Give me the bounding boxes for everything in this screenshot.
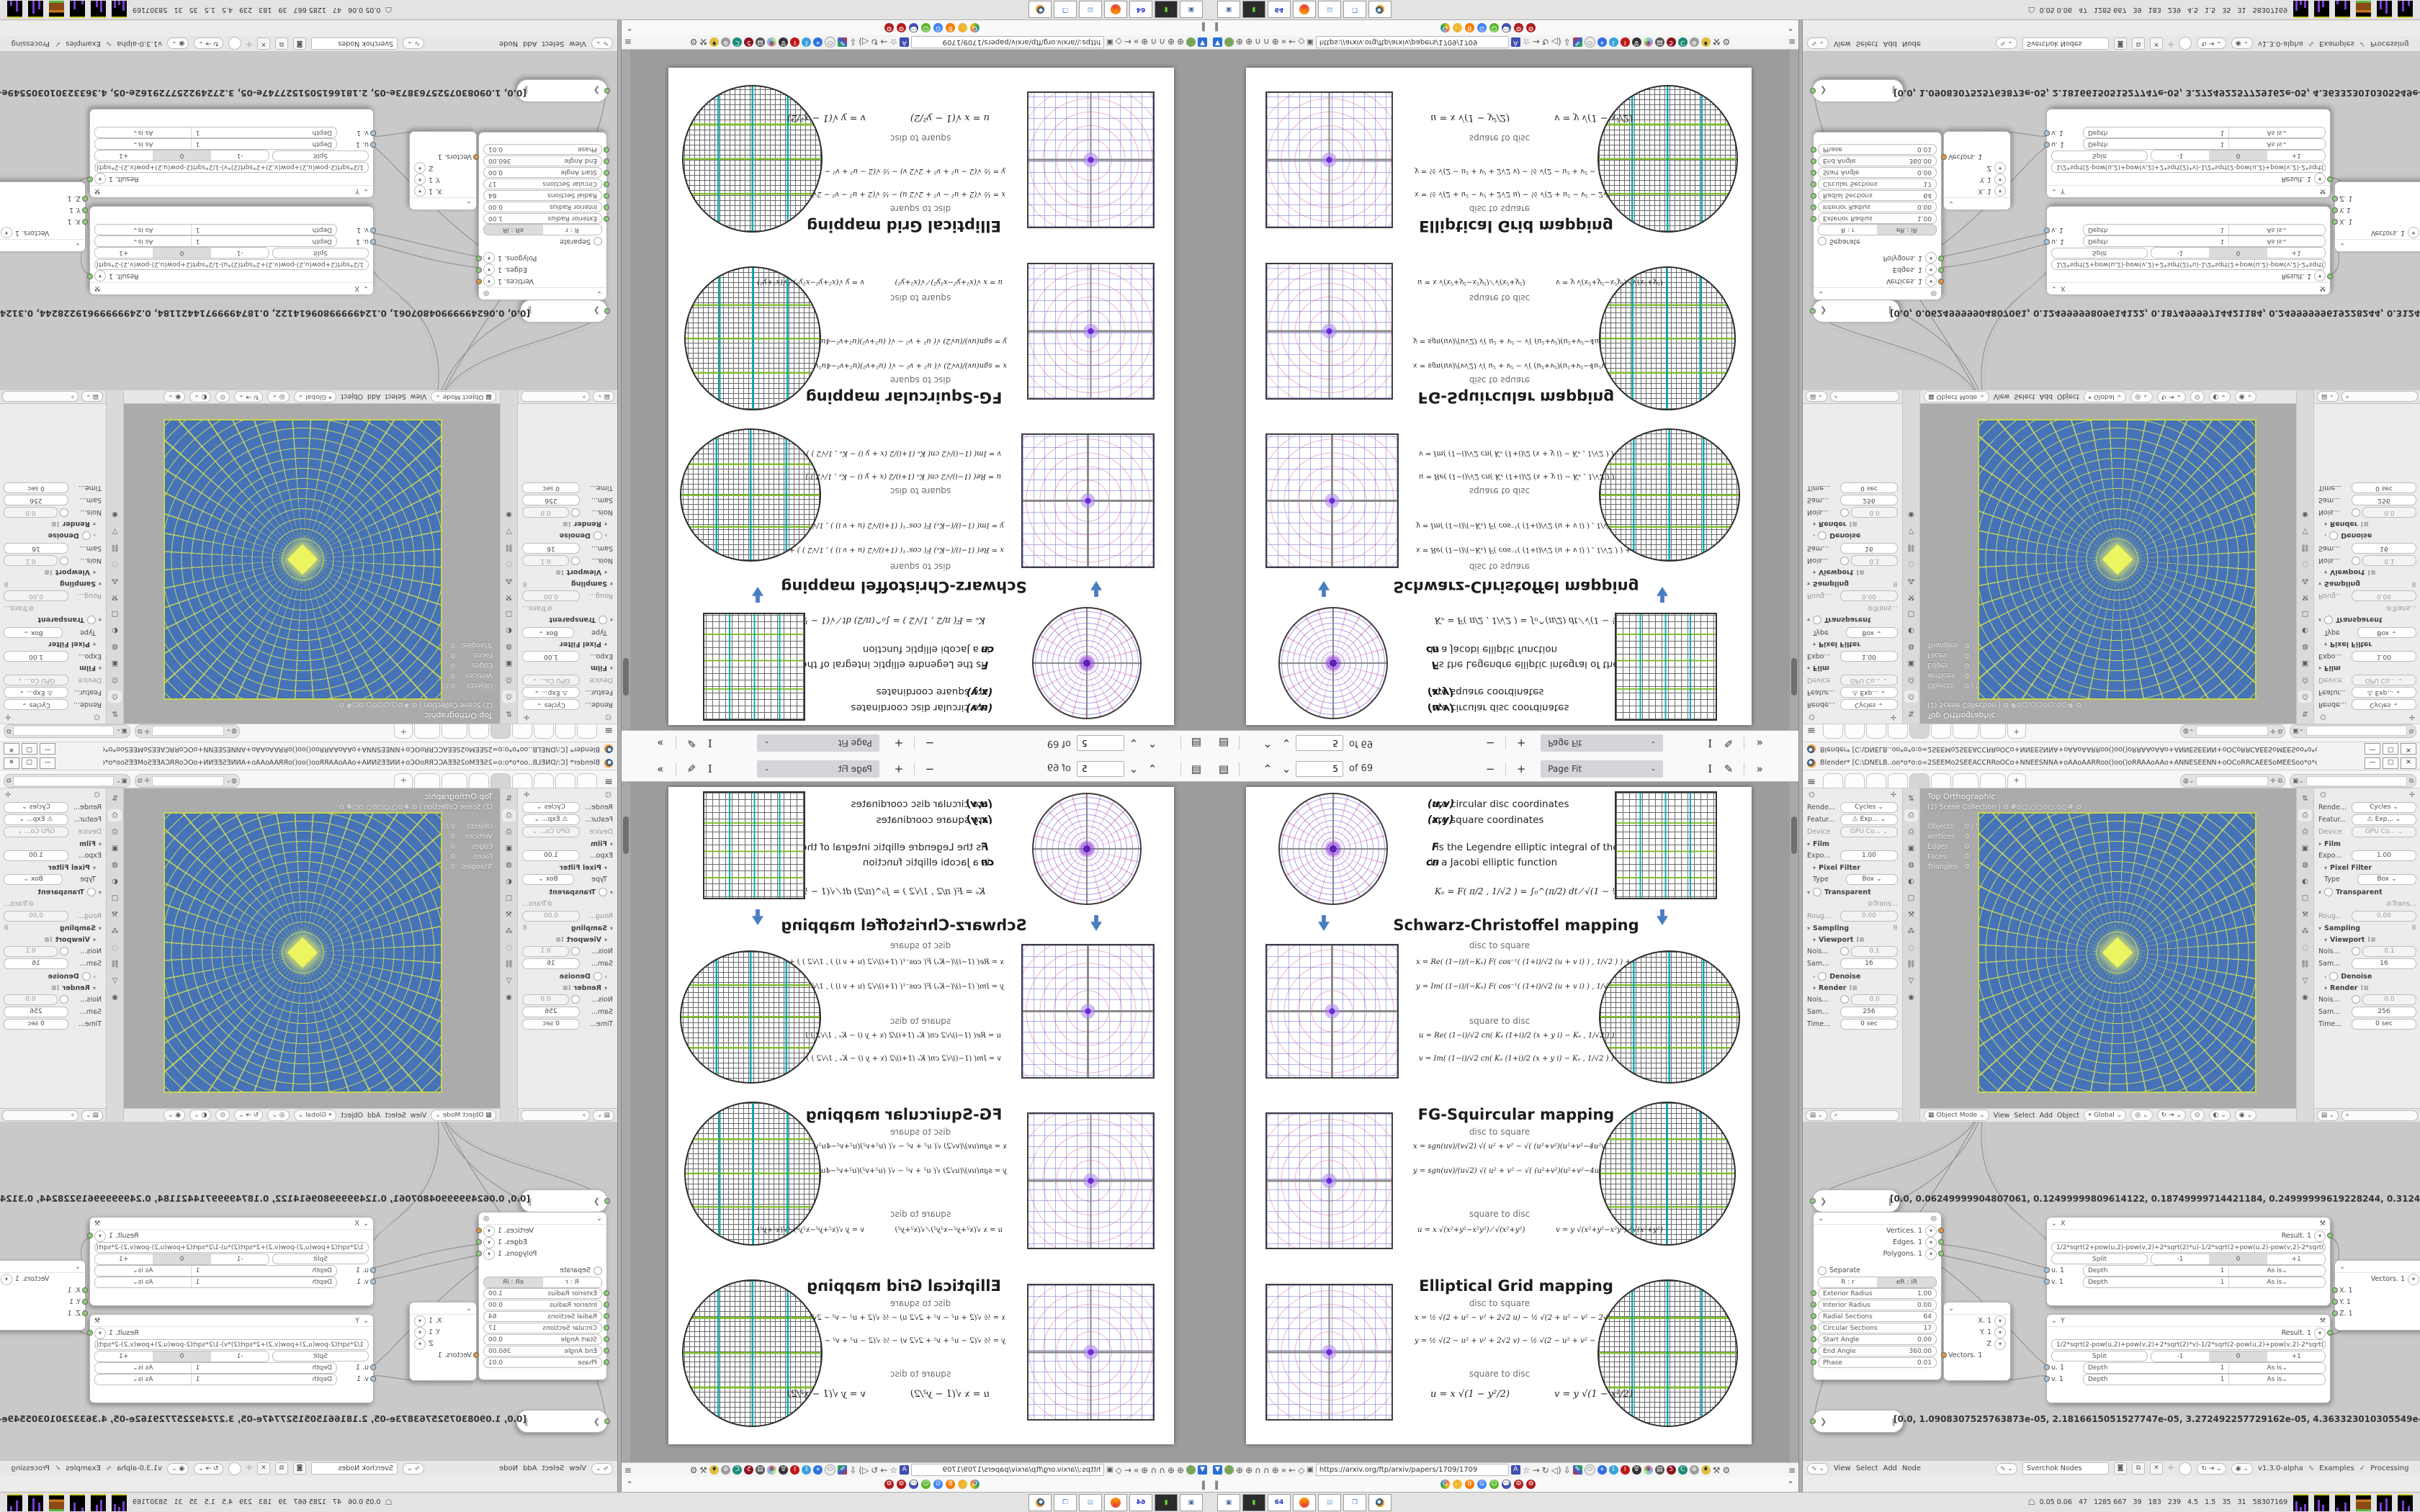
- globe-icon[interactable]: ⊕: [1236, 1465, 1243, 1475]
- viewport-noise-checkbox[interactable]: [1840, 947, 1849, 955]
- workspace-tab[interactable]: [555, 773, 575, 788]
- translate-icon[interactable]: A: [900, 37, 909, 47]
- node-menu[interactable]: Node: [499, 40, 518, 48]
- copy-icon[interactable]: ⧉: [2409, 728, 2414, 735]
- transparent-checkbox[interactable]: [599, 888, 607, 896]
- next-page-button[interactable]: ⌄: [1277, 760, 1296, 778]
- display-mode-button[interactable]: ▤ ⌄: [2317, 392, 2339, 402]
- render-tab-icon[interactable]: ⎙: [502, 690, 516, 703]
- video-download-icon[interactable]: ⇩: [802, 1465, 811, 1475]
- chat-site-icon[interactable]: 💬: [909, 1480, 918, 1489]
- screenshot-app-icon[interactable]: ▣: [1180, 1, 1203, 19]
- constraints-tab-icon[interactable]: ⛓: [108, 958, 122, 971]
- denoise-section[interactable]: ›Denoise: [4, 531, 96, 540]
- emulator-app-icon[interactable]: 64: [1129, 1, 1152, 19]
- collapsed-node[interactable]: ❯‖: [1812, 1189, 1900, 1212]
- copy-icon[interactable]: ⧉: [2278, 778, 2282, 785]
- google-site-icon[interactable]: G: [1440, 23, 1450, 32]
- globe-icon[interactable]: ⊕: [1245, 37, 1252, 48]
- material-tab-icon[interactable]: ◉: [2298, 991, 2312, 1004]
- viewport-noise-checkbox[interactable]: [571, 557, 580, 565]
- node-menu[interactable]: Node: [1902, 1464, 1921, 1472]
- param-field[interactable]: End Angle360.00: [483, 1346, 602, 1356]
- zoom-level-select[interactable]: Page Fit⌄: [1541, 760, 1663, 778]
- archive-icon[interactable]: ▤: [756, 1465, 765, 1475]
- viewport-samples-field[interactable]: 16: [4, 544, 68, 554]
- denoise-section[interactable]: ›Denoise: [1813, 531, 1898, 540]
- output-tab-icon[interactable]: ⎙: [108, 674, 122, 686]
- scene-selector-field[interactable]: ◍⌄ ✛⧉: [2180, 774, 2285, 788]
- shading-mode-toggle[interactable]: ◉ ⌄: [2235, 391, 2257, 402]
- examples-menu[interactable]: Examples: [2319, 1464, 2354, 1472]
- filter-tab-icon[interactable]: ⇅: [2298, 707, 2312, 719]
- viewport-samples-field[interactable]: 16: [1840, 544, 1898, 554]
- material-tab-icon[interactable]: ◉: [108, 508, 122, 521]
- red-gear-site-icon[interactable]: ⚙: [1526, 23, 1536, 32]
- snap-toggle[interactable]: ↻ ⇥ ⌄: [194, 38, 223, 50]
- shading-mode-toggle[interactable]: ◉ ⌄: [2235, 1110, 2257, 1121]
- zoom-out-button[interactable]: −: [920, 734, 939, 753]
- select-menu[interactable]: Select: [2014, 393, 2035, 401]
- time-limit-field[interactable]: 0 sec: [522, 1019, 580, 1030]
- modifier-tab-icon[interactable]: ⚒: [1904, 591, 1918, 603]
- collapse-chevron-icon[interactable]: ⌄: [75, 242, 81, 250]
- denoise-checkbox[interactable]: [593, 531, 602, 540]
- mode-select[interactable]: ▦Object Mode⌄: [431, 391, 496, 402]
- formula-node-x[interactable]: ⌄X⚒ Result. 1▾ 1/2*sqrt(2+pow(u,2)-pow(v…: [2046, 1217, 2331, 1306]
- depth-control[interactable]: Depth1As is ⌄: [2083, 225, 2326, 236]
- render-samples-field[interactable]: 256: [522, 1007, 580, 1017]
- device-select[interactable]: GPU Co...⌄: [2352, 827, 2416, 837]
- pivot-point-select[interactable]: ◎ ⌄: [2130, 391, 2152, 402]
- smiley-site-icon[interactable]: ☺: [1489, 1480, 1499, 1489]
- formula-input[interactable]: 1/2*sqrt(2-pow(u,2)+pow(v,2)+2*sqrt(2)*v…: [2051, 1339, 2326, 1350]
- viewlayer-selector-field[interactable]: ▣⌄ ⧉: [2290, 724, 2416, 738]
- transform-orientation-select[interactable]: ⌖Global⌄: [294, 391, 336, 402]
- gray-globe-icon[interactable]: ⊕: [721, 37, 730, 47]
- collapse-chevron-icon[interactable]: ⌃: [1787, 1480, 1794, 1490]
- denoise-checkbox[interactable]: [1818, 531, 1827, 540]
- render-noise-field[interactable]: 0.0: [2362, 994, 2416, 1005]
- mode-select[interactable]: ▦Object Mode⌄: [431, 1110, 496, 1121]
- object-tab-icon[interactable]: □: [2298, 608, 2312, 620]
- scene-selector-field[interactable]: ◍⌄ ✛⧉: [135, 774, 240, 788]
- separate-checkbox[interactable]: [593, 1266, 602, 1275]
- sampling-render-section[interactable]: ▾Render⁝≡: [522, 520, 607, 528]
- collapse-chevron-icon[interactable]: ⌄: [75, 1263, 81, 1271]
- zoom-out-button[interactable]: −: [1481, 734, 1500, 753]
- render-engine-select[interactable]: Cycles⌄: [522, 802, 580, 813]
- zoom-in-button[interactable]: +: [1512, 734, 1531, 753]
- viewport-3d[interactable]: Top Orthographic (2) Scene Collection | …: [124, 390, 500, 724]
- collapsed-node[interactable]: ❯‖: [516, 79, 608, 102]
- render-samples-field[interactable]: 256: [522, 495, 580, 506]
- gray-globe-icon[interactable]: ⊕: [1690, 37, 1699, 47]
- param-field[interactable]: End Angle360.00: [1818, 156, 1937, 166]
- world-tab-icon[interactable]: ◐: [108, 624, 122, 636]
- mode-select[interactable]: ▦Object Mode⌄: [1924, 1110, 1989, 1121]
- colored-globe-icon[interactable]: ⊕: [1644, 37, 1653, 47]
- node-editor[interactable]: ❯‖ [0.0, 0.06249999904807061, 0.12499999…: [1803, 1122, 2420, 1476]
- pixel-filter-section[interactable]: ▾Pixel Filter: [4, 640, 96, 648]
- menu-hamburger-icon[interactable]: ≡: [1788, 1465, 1796, 1475]
- radius-mode-segmented[interactable]: R : reR : iR: [483, 1277, 602, 1288]
- globe-icon[interactable]: ⊕: [1141, 37, 1148, 48]
- filter-tab-icon[interactable]: ⇅: [1904, 793, 1918, 805]
- viewport-noise-checkbox[interactable]: [1840, 557, 1849, 565]
- collapsed-node[interactable]: ❯‖: [1812, 1410, 1904, 1433]
- render-tab-icon[interactable]: ⎙: [2298, 690, 2312, 703]
- parent-tree-button[interactable]: [2179, 37, 2192, 50]
- add-menu[interactable]: Add: [1883, 1464, 1897, 1472]
- copy-icon[interactable]: ⧉: [6, 728, 11, 735]
- settings-gear-icon[interactable]: ⚙: [690, 37, 698, 48]
- view-menu[interactable]: View: [1994, 1112, 2010, 1120]
- object-menu[interactable]: Object: [2057, 393, 2079, 401]
- object-menu[interactable]: Object: [2057, 1112, 2079, 1120]
- speaker-icon[interactable]: ◁): [859, 1465, 869, 1475]
- properties-search-input[interactable]: ⌕: [521, 392, 590, 402]
- properties-search-input[interactable]: ⌕: [1830, 392, 1899, 402]
- trash-icon[interactable]: 🝩: [779, 37, 788, 47]
- proportional-edit-toggle[interactable]: ⊙: [216, 391, 230, 402]
- shield-icon[interactable]: ◇: [1298, 37, 1304, 48]
- headset-icon[interactable]: ∩: [1255, 37, 1261, 48]
- physics-tab-icon[interactable]: ◌: [108, 558, 122, 570]
- firefox-app-icon[interactable]: [1293, 1494, 1316, 1511]
- formula-input[interactable]: 1/2*sqrt(2+pow(u,2)-pow(v,2)+2*sqrt(2)*u…: [2051, 1242, 2326, 1253]
- red-shield-icon[interactable]: 5: [1667, 1465, 1676, 1475]
- workspace-tab[interactable]: [512, 724, 532, 739]
- modifier-tab-icon[interactable]: ⚒: [2298, 591, 2312, 603]
- red-gear-site-icon[interactable]: ⚙: [897, 1480, 906, 1489]
- sampling-render-section[interactable]: ▾Render⁝≡: [2324, 520, 2416, 528]
- close-button[interactable]: ✕: [2401, 757, 2416, 769]
- sampling-viewport-section[interactable]: ▾Viewport⁝≡: [4, 568, 96, 576]
- globe-icon[interactable]: ⊕: [1245, 1465, 1252, 1475]
- blogger-site-icon[interactable]: B: [946, 1480, 955, 1489]
- copy-icon[interactable]: ⧉: [138, 728, 142, 735]
- headset-icon[interactable]: ∩: [1150, 1465, 1157, 1475]
- pause-icon[interactable]: ‖: [1201, 1480, 1206, 1490]
- node-editor[interactable]: ❯‖ [0.0, 0.06249999904807061, 0.12499999…: [0, 1122, 617, 1476]
- filter-type-select[interactable]: Box⌄: [2357, 628, 2416, 639]
- overlays-toggle[interactable]: ◐ ⌄: [189, 1110, 211, 1121]
- node-tree-name-field[interactable]: Sverchok Nodes: [311, 37, 398, 50]
- maximize-button[interactable]: ▢: [2383, 744, 2398, 755]
- google-site-icon[interactable]: G: [970, 1480, 980, 1489]
- sampling-viewport-section[interactable]: ▾Viewport⁝≡: [522, 936, 607, 944]
- render-noise-checkbox[interactable]: [60, 995, 68, 1004]
- pin-icon[interactable]: ✛: [1891, 713, 1896, 721]
- feature-set-select[interactable]: ⚠Exp...⌄: [1840, 814, 1898, 825]
- sampling-section[interactable]: ▾Sampling⠿: [1807, 580, 1898, 588]
- filter-tab-icon[interactable]: ⇅: [1904, 707, 1918, 719]
- param-field[interactable]: Phase0.01: [483, 1357, 602, 1368]
- fake-user-shield-button[interactable]: ◙: [2114, 37, 2127, 50]
- pin-icon[interactable]: ✛: [524, 791, 529, 799]
- pdf-scrollbar[interactable]: [622, 782, 630, 1462]
- translate-icon[interactable]: A: [1511, 1465, 1520, 1475]
- filter-tab-icon[interactable]: ⇅: [108, 707, 122, 719]
- sampling-viewport-section[interactable]: ▾Viewport⁝≡: [1813, 936, 1898, 944]
- transform-orientation-select[interactable]: ⌖Global⌄: [294, 1110, 336, 1121]
- overlay-toggle[interactable]: ◉ ⌄: [167, 38, 189, 50]
- param-field[interactable]: Circular Sections17: [483, 1323, 602, 1333]
- render-noise-checkbox[interactable]: [2352, 995, 2360, 1004]
- socket-menu-button[interactable]: ▾: [1, 228, 12, 239]
- render-noise-field[interactable]: 0.0: [4, 994, 58, 1005]
- pixel-filter-section[interactable]: ▾Pixel Filter: [1813, 640, 1898, 648]
- particles-tab-icon[interactable]: ⁂: [1904, 925, 1918, 937]
- globe-icon[interactable]: ⊕: [1141, 1465, 1148, 1475]
- chat-site-icon[interactable]: 💬: [1502, 23, 1511, 32]
- scene-tab-icon[interactable]: ◍: [2298, 641, 2312, 653]
- add-extension-icon[interactable]: +: [813, 1465, 823, 1475]
- separate-checkbox[interactable]: [1818, 238, 1827, 246]
- pixel-filter-section[interactable]: ▾Pixel Filter: [1813, 864, 1898, 872]
- ice-extension-icon[interactable]: I: [790, 37, 799, 47]
- filter-type-select[interactable]: Box⌄: [4, 874, 63, 885]
- minimize-button[interactable]: —: [2365, 757, 2380, 769]
- socket-menu-button[interactable]: ▾: [2408, 228, 2419, 239]
- socket-menu-button[interactable]: ▾: [94, 174, 106, 185]
- pin-icon[interactable]: ✛: [2168, 40, 2174, 48]
- collapsed-node[interactable]: ❯‖: [516, 1410, 608, 1433]
- denoise-section[interactable]: ›Denoise: [522, 531, 607, 540]
- zoom-in-button[interactable]: +: [889, 760, 908, 778]
- workspace-menu-icon[interactable]: ≡: [604, 724, 613, 736]
- world-tab-icon[interactable]: ◐: [1904, 876, 1918, 888]
- roughness-field[interactable]: 0.00: [522, 911, 580, 922]
- close-button[interactable]: ✕: [2401, 744, 2416, 755]
- target-icon[interactable]: ◎: [1931, 1215, 1937, 1223]
- red-gear-site-icon[interactable]: ⚙: [897, 23, 906, 32]
- feature-set-select[interactable]: ⚠Exp...⌄: [4, 814, 68, 825]
- feature-set-select[interactable]: ⚠Exp...⌄: [522, 814, 580, 825]
- sampling-render-section[interactable]: ▾Render⁝≡: [1813, 984, 1898, 992]
- url-bar[interactable]: https://arxiv.org/ftp/arxiv/papers/1709/…: [911, 36, 1104, 48]
- scrollbar-thumb[interactable]: [1791, 816, 1797, 854]
- recorder-app-icon[interactable]: ▮: [1242, 1, 1265, 19]
- speaker-icon[interactable]: ◁): [1551, 1465, 1561, 1475]
- denoise-section[interactable]: ›Denoise: [4, 972, 96, 981]
- socket-menu-button[interactable]: ▾: [1994, 1338, 2006, 1350]
- param-field[interactable]: Exterior Radius1.00: [483, 213, 602, 224]
- forward-icon[interactable]: →: [880, 37, 887, 48]
- emulator-app-icon[interactable]: 64: [1268, 1494, 1291, 1511]
- transparent-checkbox[interactable]: [2324, 616, 2333, 624]
- param-field[interactable]: Interior Radius0.00: [483, 1300, 602, 1310]
- collapse-chevron-icon[interactable]: ⌄: [2339, 242, 2345, 250]
- offset-segmented[interactable]: -10+1: [2151, 1351, 2326, 1362]
- workspace-tab[interactable]: [1953, 724, 1978, 739]
- headset-icon[interactable]: ∩: [1263, 1465, 1270, 1475]
- mouse-extension-icon[interactable]: ⬭: [825, 1464, 835, 1475]
- viewport-samples-field[interactable]: 16: [522, 958, 580, 969]
- collapse-chevron-icon[interactable]: ⌄: [363, 188, 369, 196]
- render-samples-field[interactable]: 256: [2352, 1007, 2416, 1017]
- param-field[interactable]: Interior Radius0.00: [483, 202, 602, 212]
- data-tab-icon[interactable]: ▽: [108, 975, 122, 987]
- zoom-out-button[interactable]: −: [1481, 760, 1500, 778]
- wrench-icon[interactable]: ⚒: [1713, 37, 1721, 48]
- copy-tree-button[interactable]: ⧉: [275, 1462, 288, 1475]
- sampling-viewport-section[interactable]: ▾Viewport⁝≡: [2324, 568, 2416, 576]
- collapse-chevron-icon[interactable]: ⌄: [363, 1317, 369, 1325]
- vector-in-node[interactable]: ⌄ Vectors. 1▾ X. 1 Y. 1 Z. 1: [2334, 1260, 2420, 1331]
- collapsed-node[interactable]: ❯‖: [1812, 300, 1900, 323]
- socket-menu-button[interactable]: ▾: [414, 1338, 426, 1350]
- sidebar-toggle-icon[interactable]: ▤: [1214, 760, 1233, 778]
- workspace-tab[interactable]: [1953, 773, 1978, 788]
- param-field[interactable]: Exterior Radius1.00: [1818, 1288, 1937, 1299]
- modifier-tab-icon[interactable]: ⚒: [502, 909, 516, 921]
- hand-site-icon[interactable]: ✋: [958, 23, 967, 32]
- material-tab-icon[interactable]: ◉: [108, 991, 122, 1004]
- unlink-tree-button[interactable]: ✕: [2150, 37, 2163, 50]
- smiley-site-icon[interactable]: ☺: [921, 1480, 931, 1489]
- render-samples-field[interactable]: 256: [2352, 495, 2416, 506]
- overflow-chevron-icon[interactable]: »: [1281, 37, 1286, 48]
- settings-gear-icon[interactable]: ⚙: [1723, 1465, 1731, 1475]
- render-samples-field[interactable]: 256: [4, 1007, 68, 1017]
- transparent-checkbox[interactable]: [1813, 888, 1821, 896]
- socket-menu-button[interactable]: ▾: [483, 264, 495, 276]
- colored-globe-icon[interactable]: ⊕: [767, 37, 776, 47]
- headset-icon[interactable]: ∩: [1255, 1465, 1261, 1475]
- transparent-checkbox[interactable]: [87, 888, 96, 896]
- transmission-check-icon[interactable]: ⊘: [28, 900, 34, 908]
- menu-hamburger-icon[interactable]: ≡: [624, 1465, 632, 1475]
- thumbs-up-icon[interactable]: ♦: [1701, 1465, 1711, 1475]
- globe-icon[interactable]: ⊕: [1168, 37, 1175, 48]
- render-engine-select[interactable]: Cycles⌄: [4, 802, 68, 813]
- filter-tab-icon[interactable]: ⇅: [2298, 793, 2312, 805]
- param-field[interactable]: Interior Radius0.00: [1818, 1300, 1937, 1310]
- scene-tab-icon[interactable]: ◍: [2298, 859, 2312, 871]
- render-engine-select[interactable]: Cycles⌄: [2352, 700, 2416, 711]
- teal-shield-icon[interactable]: C: [732, 1465, 742, 1475]
- exposure-field[interactable]: 1.00: [1840, 850, 1898, 861]
- smiley-site-icon[interactable]: ☺: [1489, 23, 1499, 32]
- add-workspace-button[interactable]: +: [394, 724, 413, 739]
- scene-selector-field[interactable]: ◍⌄ ✛⧉: [2180, 724, 2285, 738]
- url-bar[interactable]: https://arxiv.org/ftp/arxiv/papers/1709/…: [911, 1464, 1104, 1476]
- translate-icon[interactable]: A: [1511, 37, 1520, 47]
- fake-user-shield-button[interactable]: ◙: [293, 1462, 306, 1475]
- sampling-section[interactable]: ▾Sampling⠿: [2318, 924, 2416, 932]
- pdf-scrollbar[interactable]: [622, 50, 630, 730]
- circle-generator-node[interactable]: ⌄◎ Vertices. 1▾ Edges. 1▾ Polygons. 1▾ S…: [1813, 1212, 1942, 1380]
- param-field[interactable]: Phase0.01: [483, 144, 602, 155]
- viewlayer-tab-icon[interactable]: ▣: [2298, 657, 2312, 670]
- add-extension-icon[interactable]: +: [813, 37, 823, 47]
- bookmark-star-icon[interactable]: ☆: [889, 37, 897, 48]
- collapse-chevron-icon[interactable]: ⌃: [1787, 23, 1794, 33]
- explorer-app-icon[interactable]: ❐: [1054, 1, 1077, 19]
- workspace-tab-active[interactable]: [490, 773, 511, 788]
- output-tab-icon[interactable]: ⎙: [1904, 826, 1918, 838]
- extension-icon[interactable]: [1186, 37, 1196, 47]
- roughness-field[interactable]: 0.00: [2352, 591, 2416, 602]
- render-noise-checkbox[interactable]: [60, 508, 68, 517]
- data-tab-icon[interactable]: ▽: [502, 525, 516, 537]
- depth-control[interactable]: Depth1As is ⌄: [2083, 127, 2326, 139]
- video-download-icon[interactable]: ⇩: [1609, 37, 1618, 47]
- workspace-tab[interactable]: [577, 773, 597, 788]
- param-field[interactable]: Radial Sections64: [1818, 1311, 1937, 1322]
- chat-site-icon[interactable]: 💬: [909, 23, 918, 32]
- overflow-chevron-icon[interactable]: »: [1281, 1465, 1286, 1475]
- globe-icon[interactable]: ⊕: [1177, 1465, 1184, 1475]
- pin-icon[interactable]: ✛: [246, 1464, 252, 1472]
- viewlayer-tab-icon[interactable]: ▣: [502, 657, 516, 670]
- tree-type-button[interactable]: ∿ ⌄: [403, 1463, 424, 1475]
- explorer-app-icon[interactable]: ❐: [1054, 1494, 1077, 1511]
- browser-logo-icon[interactable]: ▼: [1198, 1465, 1207, 1475]
- add-extension-icon[interactable]: +: [1597, 37, 1607, 47]
- mode-select[interactable]: ▦Object Mode⌄: [1924, 391, 1989, 402]
- collapse-chevron-icon[interactable]: ⌄: [1818, 290, 1824, 298]
- speaker-icon[interactable]: ◁): [1551, 37, 1561, 48]
- radius-mode-segmented[interactable]: R : reR : iR: [1818, 1277, 1937, 1288]
- transparent-checkbox[interactable]: [1813, 616, 1821, 624]
- snap-toggle[interactable]: ↻ ⇥ ⌄: [2197, 38, 2226, 50]
- param-field[interactable]: Circular Sections17: [1818, 1323, 1937, 1333]
- object-tab-icon[interactable]: □: [1904, 608, 1918, 620]
- archive-icon[interactable]: ▤: [756, 37, 765, 47]
- pivot-point-select[interactable]: ◎ ⌄: [2130, 1110, 2152, 1121]
- render-engine-select[interactable]: Cycles⌄: [4, 700, 68, 711]
- examples-menu[interactable]: Examples: [66, 1464, 101, 1472]
- denoise-section[interactable]: ›Denoise: [2324, 972, 2416, 981]
- previous-page-button[interactable]: ⌃: [1258, 734, 1277, 753]
- exposure-field[interactable]: 1.00: [1840, 652, 1898, 662]
- workspace-tab-active[interactable]: [1909, 724, 1930, 739]
- socket-menu-button[interactable]: ▾: [2314, 174, 2326, 185]
- red-gear-site-icon[interactable]: ⚙: [1514, 23, 1523, 32]
- sampling-section[interactable]: ▾Sampling⠿: [522, 924, 613, 932]
- zoom-level-select[interactable]: Page Fit⌄: [757, 760, 879, 778]
- socket-menu-button[interactable]: ▾: [2314, 1230, 2326, 1242]
- formula-node-x[interactable]: ⌄X⚒ Result. 1▾ 1/2*sqrt(2+pow(u,2)-pow(v…: [2046, 206, 2331, 295]
- viewport-samples-field[interactable]: 16: [2352, 958, 2416, 969]
- node-tree-name-field[interactable]: Sverchok Nodes: [311, 1462, 398, 1475]
- param-field[interactable]: Phase0.01: [1818, 144, 1937, 155]
- socket-menu-button[interactable]: ▾: [1994, 163, 2006, 174]
- more-tools-icon[interactable]: »: [651, 734, 670, 753]
- close-button[interactable]: ✕: [4, 744, 19, 755]
- previous-page-button[interactable]: ⌃: [1258, 760, 1277, 778]
- physics-tab-icon[interactable]: ◌: [502, 942, 516, 954]
- fake-user-shield-button[interactable]: ◙: [293, 37, 306, 50]
- exposure-field[interactable]: 1.00: [4, 850, 68, 861]
- properties-search-input[interactable]: ⌕: [2341, 1110, 2418, 1121]
- properties-search-input[interactable]: ⌕: [521, 1110, 590, 1121]
- filter-type-select[interactable]: Box⌄: [522, 628, 574, 639]
- viewport-noise-checkbox[interactable]: [60, 947, 68, 955]
- vector-in-node[interactable]: ⌄ Vectors. 1▾ X. 1 Y. 1 Z. 1: [2334, 181, 2420, 252]
- shield-icon[interactable]: ◇: [1298, 1465, 1304, 1475]
- depth-control[interactable]: Depth1As is ⌄: [94, 1374, 337, 1385]
- overlays-toggle[interactable]: ◐ ⌄: [189, 391, 211, 402]
- constraints-tab-icon[interactable]: ⛓: [1904, 541, 1918, 554]
- formula-input[interactable]: 1/2*sqrt(2+pow(u,2)-pow(v,2)+2*sqrt(2)*u…: [2051, 259, 2326, 270]
- download-icon[interactable]: ⇩: [849, 1465, 856, 1475]
- viewport-samples-field[interactable]: 16: [1840, 958, 1898, 969]
- param-field[interactable]: Start Angle0.00: [1818, 167, 1937, 178]
